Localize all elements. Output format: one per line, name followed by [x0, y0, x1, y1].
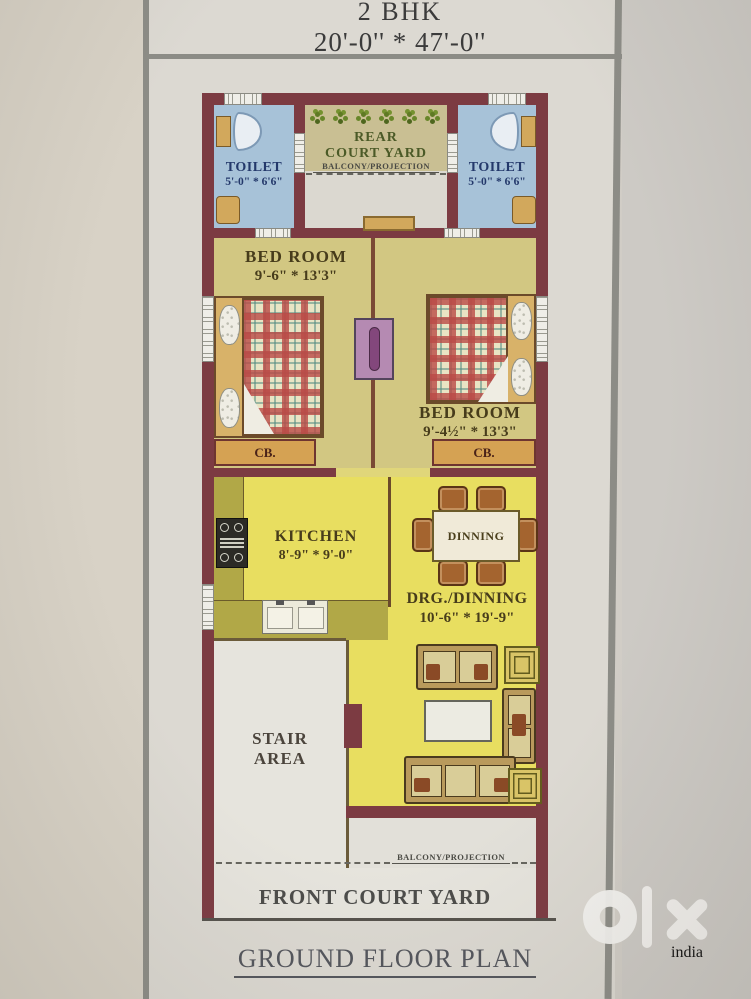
passage-gap-floor [336, 468, 430, 477]
sofa-throw [512, 714, 526, 736]
stair-right-line [346, 640, 349, 868]
window-icon [202, 296, 214, 362]
olx-watermark: india [575, 880, 745, 960]
wall-bedrooms-bottom-left [214, 468, 336, 477]
stair-door-jamb [344, 704, 362, 748]
rear-courtyard-label-line2: COURT YARD [325, 146, 427, 162]
olx-sub-label: india [671, 944, 703, 962]
side-table [508, 768, 542, 804]
pillow-icon [511, 302, 532, 340]
drg-dining-name: DRG./DINNING [406, 589, 527, 609]
plant-icon [361, 112, 366, 117]
dining-chair [438, 560, 468, 586]
toilet-left-label: TOILET 5'-0" * 6'6" [214, 152, 294, 196]
drg-dining-label: DRG./DINNING 10'-6" * 19'-9" [390, 584, 544, 632]
bed-icon [426, 294, 536, 404]
sink-basin [298, 607, 324, 629]
floor-plan-photo: 2 BHK 20'-0'' * 47'-0'' REA [0, 0, 751, 999]
toilet-left-name: TOILET [226, 160, 282, 176]
stair-area-line2: AREA [254, 749, 306, 769]
olx-logo-x [661, 896, 713, 942]
cupboard-right-label: CB. [473, 445, 494, 461]
wall-bedrooms-bottom-right [430, 468, 536, 477]
plan-title-type: 2 BHK [358, 0, 442, 27]
kitchen-label: KITCHEN 8'-9" * 9'-0" [252, 522, 380, 570]
cupboard-right: CB. [432, 439, 536, 466]
front-court-yard-label: FRONT COURT YARD [214, 882, 536, 912]
sofa-cushion [445, 765, 476, 797]
dining-chair [412, 518, 434, 552]
stair-area-line1: STAIR [252, 729, 308, 749]
balcony-dash-rear [306, 173, 446, 175]
cistern-icon [216, 116, 231, 147]
stair-top-line [214, 638, 346, 641]
toilet-right-label: TOILET 5'-0" * 6'6" [458, 152, 536, 196]
balcony-dash-front-right [512, 862, 536, 864]
sofa-side-two-seater [502, 688, 536, 764]
plant-icon [315, 112, 320, 117]
drg-dining-size: 10'-6" * 19'-9" [420, 609, 515, 628]
sofa-throw [474, 664, 488, 680]
dining-table-label: DINNING [448, 529, 505, 544]
dining-chair [438, 486, 468, 512]
rear-courtyard-label-line1: REAR [354, 130, 398, 146]
floor-caption: GROUND FLOOR PLAN [150, 938, 620, 984]
frame-line-vertical-left [143, 0, 149, 999]
toilet-right-name: TOILET [469, 160, 525, 176]
cupboard-left: CB. [214, 439, 316, 466]
pillow-icon [511, 358, 532, 396]
outer-wall-left [202, 93, 214, 920]
window-icon [488, 93, 526, 105]
dining-chair [476, 486, 506, 512]
bedroom-left-name: BED ROOM [245, 246, 347, 267]
pillow-icon [219, 305, 240, 345]
cistern-icon [521, 116, 536, 147]
toilet-left-size: 5'-0" * 6'6" [225, 176, 283, 188]
window-icon [447, 133, 458, 173]
stair-area-label: STAIR AREA [228, 722, 332, 776]
sofa-two-seater [416, 644, 498, 690]
dining-chair [476, 560, 506, 586]
bed-icon [214, 296, 324, 438]
floor-caption-text: GROUND FLOOR PLAN [234, 944, 536, 978]
sink-icon [262, 600, 328, 634]
stove-burner [234, 523, 243, 532]
kitchen-name: KITCHEN [275, 527, 358, 547]
stove-icon [216, 518, 248, 568]
stove-burner [234, 553, 243, 562]
kitchen-size: 8'-9" * 9'-0" [279, 547, 354, 565]
bed-fold [244, 384, 274, 434]
window-icon [536, 296, 548, 362]
plant-icon [384, 112, 389, 117]
sofa-throw [426, 664, 440, 680]
bedroom-right-name: BED ROOM [419, 402, 521, 423]
toilet-right-size: 5'-0" * 6'6" [468, 176, 526, 188]
rear-courtyard-label: REAR COURT YARD [305, 126, 447, 166]
photo-wall-left [0, 0, 145, 999]
olx-logo-o [583, 890, 637, 944]
bed-fold [478, 356, 508, 402]
window-icon [294, 133, 305, 173]
olx-logo-bar [642, 886, 652, 948]
balcony-projection-note-front: BALCONY/PROJECTION [392, 852, 510, 864]
window-icon [202, 584, 214, 630]
coffee-table [424, 700, 492, 742]
wash-basin-icon [512, 196, 536, 224]
wash-basin-icon [216, 196, 240, 224]
window-icon [444, 228, 480, 238]
balcony-projection-note-rear: BALCONY/PROJECTION [313, 161, 439, 173]
pillow-icon [219, 388, 240, 428]
wall-living-bottom [346, 806, 548, 818]
cupboard-left-label: CB. [254, 445, 275, 461]
sink-tap-icon [276, 600, 284, 605]
side-table [504, 646, 540, 684]
sofa-three-seater [404, 756, 516, 804]
plan-title-dimensions: 20'-0'' * 47'-0'' [314, 27, 486, 58]
bedroom-door-icon [354, 318, 394, 380]
sink-tap-icon [307, 600, 315, 605]
window-icon [255, 228, 291, 238]
window-icon [224, 93, 262, 105]
bedroom-door-leaf [369, 327, 380, 371]
photo-wall-right [622, 0, 751, 999]
stove-grill [220, 538, 244, 548]
plant-icon [338, 112, 343, 117]
rear-step [363, 216, 415, 231]
plant-icon [407, 112, 412, 117]
bedroom-left-size: 9'-6" * 13'3" [255, 267, 338, 286]
stove-burner [220, 553, 229, 562]
plant-icon [430, 112, 435, 117]
sofa-throw [414, 778, 430, 792]
balcony-dash-front-left [216, 862, 390, 864]
sink-basin [267, 607, 293, 629]
stove-burner [220, 523, 229, 532]
plan-title: 2 BHK 20'-0'' * 47'-0'' [150, 0, 650, 54]
bedroom-left-label: BED ROOM 9'-6" * 13'3" [225, 243, 367, 289]
dining-table: DINNING [432, 510, 520, 562]
front-court-yard-bottom-line [202, 918, 556, 921]
